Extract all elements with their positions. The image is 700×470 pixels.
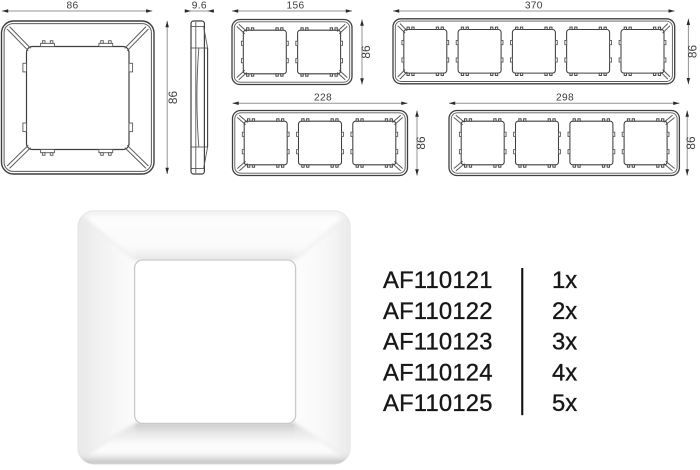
svg-text:156: 156: [287, 0, 305, 11]
svg-text:5x: 5x: [552, 390, 577, 417]
svg-text:86: 86: [414, 136, 428, 150]
svg-text:86: 86: [685, 45, 699, 59]
svg-text:AF110123: AF110123: [383, 329, 493, 356]
svg-text:AF110122: AF110122: [383, 298, 493, 325]
svg-text:1x: 1x: [552, 267, 577, 294]
svg-text:2x: 2x: [552, 298, 577, 325]
svg-text:4x: 4x: [552, 359, 577, 386]
svg-text:86: 86: [166, 91, 180, 105]
svg-text:370: 370: [525, 0, 543, 11]
svg-text:86: 86: [67, 0, 79, 11]
svg-text:86: 86: [684, 136, 698, 150]
svg-text:3x: 3x: [552, 329, 577, 356]
svg-text:AF110124: AF110124: [383, 359, 493, 386]
svg-text:228: 228: [314, 93, 332, 104]
svg-text:298: 298: [556, 93, 574, 104]
svg-text:AF110121: AF110121: [383, 267, 493, 294]
svg-text:9.6: 9.6: [192, 0, 207, 11]
svg-text:86: 86: [359, 45, 373, 59]
svg-text:AF110125: AF110125: [383, 390, 493, 417]
